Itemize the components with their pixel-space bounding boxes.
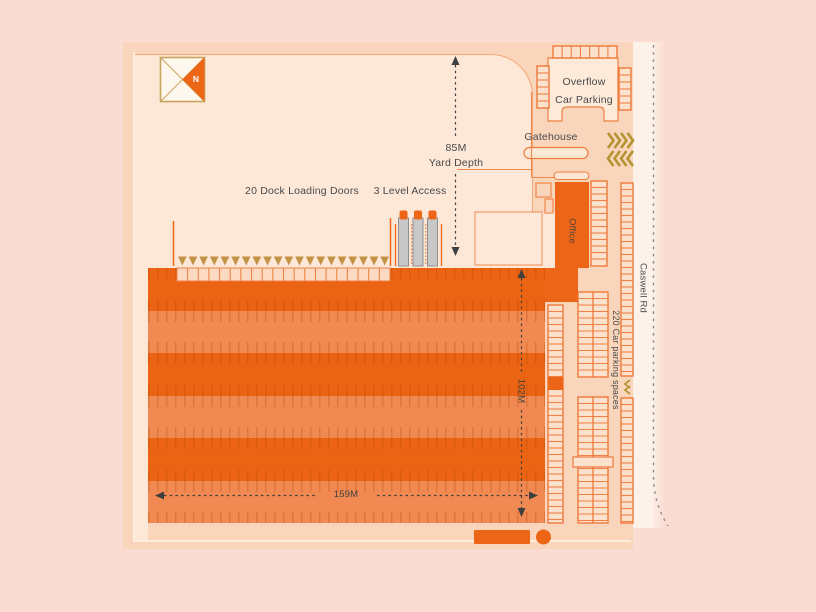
- dock-doors-label: 20 Dock Loading Doors: [245, 185, 359, 197]
- warehouse-building: [148, 268, 545, 523]
- inner-boundary-bottom: [133, 540, 631, 542]
- overflow-parking-label-line1: Overflow: [555, 73, 613, 91]
- overflow-parking-label-line2: Car Parking: [555, 91, 613, 109]
- road-label: Caswell Rd: [638, 263, 649, 313]
- warehouse-roof-bands: [148, 268, 545, 523]
- yard-depth-value: 85M: [429, 141, 483, 156]
- level-access-label: 3 Level Access: [374, 185, 447, 197]
- depth-dimension-label: 102M: [516, 379, 527, 404]
- office-block-extension: [545, 268, 578, 302]
- width-dimension-label: 159M: [334, 489, 359, 500]
- car-spaces-label: 220 Car parking spaces: [611, 310, 621, 409]
- office-label: Office: [567, 218, 578, 244]
- yard-depth-name: Yard Depth: [429, 156, 483, 171]
- yard-pocket: [532, 212, 555, 268]
- yard-left-strip: [135, 268, 148, 540]
- gatehouse-label: Gatehouse: [524, 131, 577, 143]
- site-plan-canvas: 20 Dock Loading Doors 3 Level Access 85M…: [0, 0, 816, 612]
- compass-north-letter: N: [189, 74, 203, 84]
